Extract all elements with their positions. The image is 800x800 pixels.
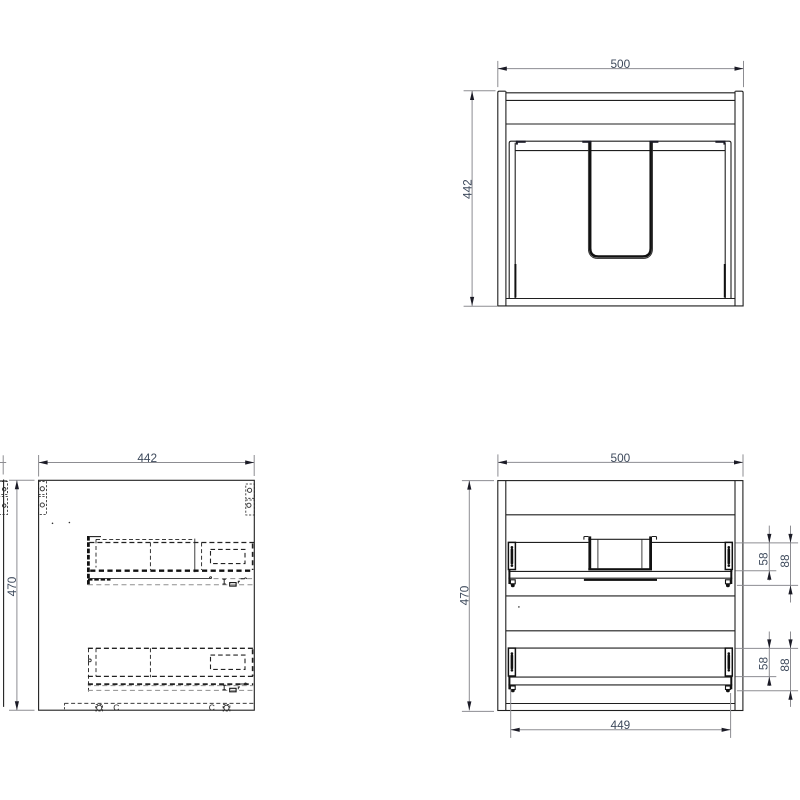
svg-text:C: C	[113, 703, 119, 713]
svg-text:500: 500	[611, 451, 631, 465]
svg-text:470: 470	[458, 585, 472, 605]
svg-text:58: 58	[757, 657, 771, 671]
svg-text:88: 88	[778, 554, 792, 568]
svg-text:442: 442	[137, 451, 157, 465]
svg-text:C: C	[209, 703, 215, 713]
svg-text:442: 442	[460, 179, 474, 199]
svg-text:88: 88	[778, 658, 792, 672]
svg-text:58: 58	[757, 552, 771, 566]
svg-text:470: 470	[5, 576, 19, 596]
svg-text:500: 500	[610, 57, 630, 71]
svg-text:449: 449	[611, 718, 631, 732]
